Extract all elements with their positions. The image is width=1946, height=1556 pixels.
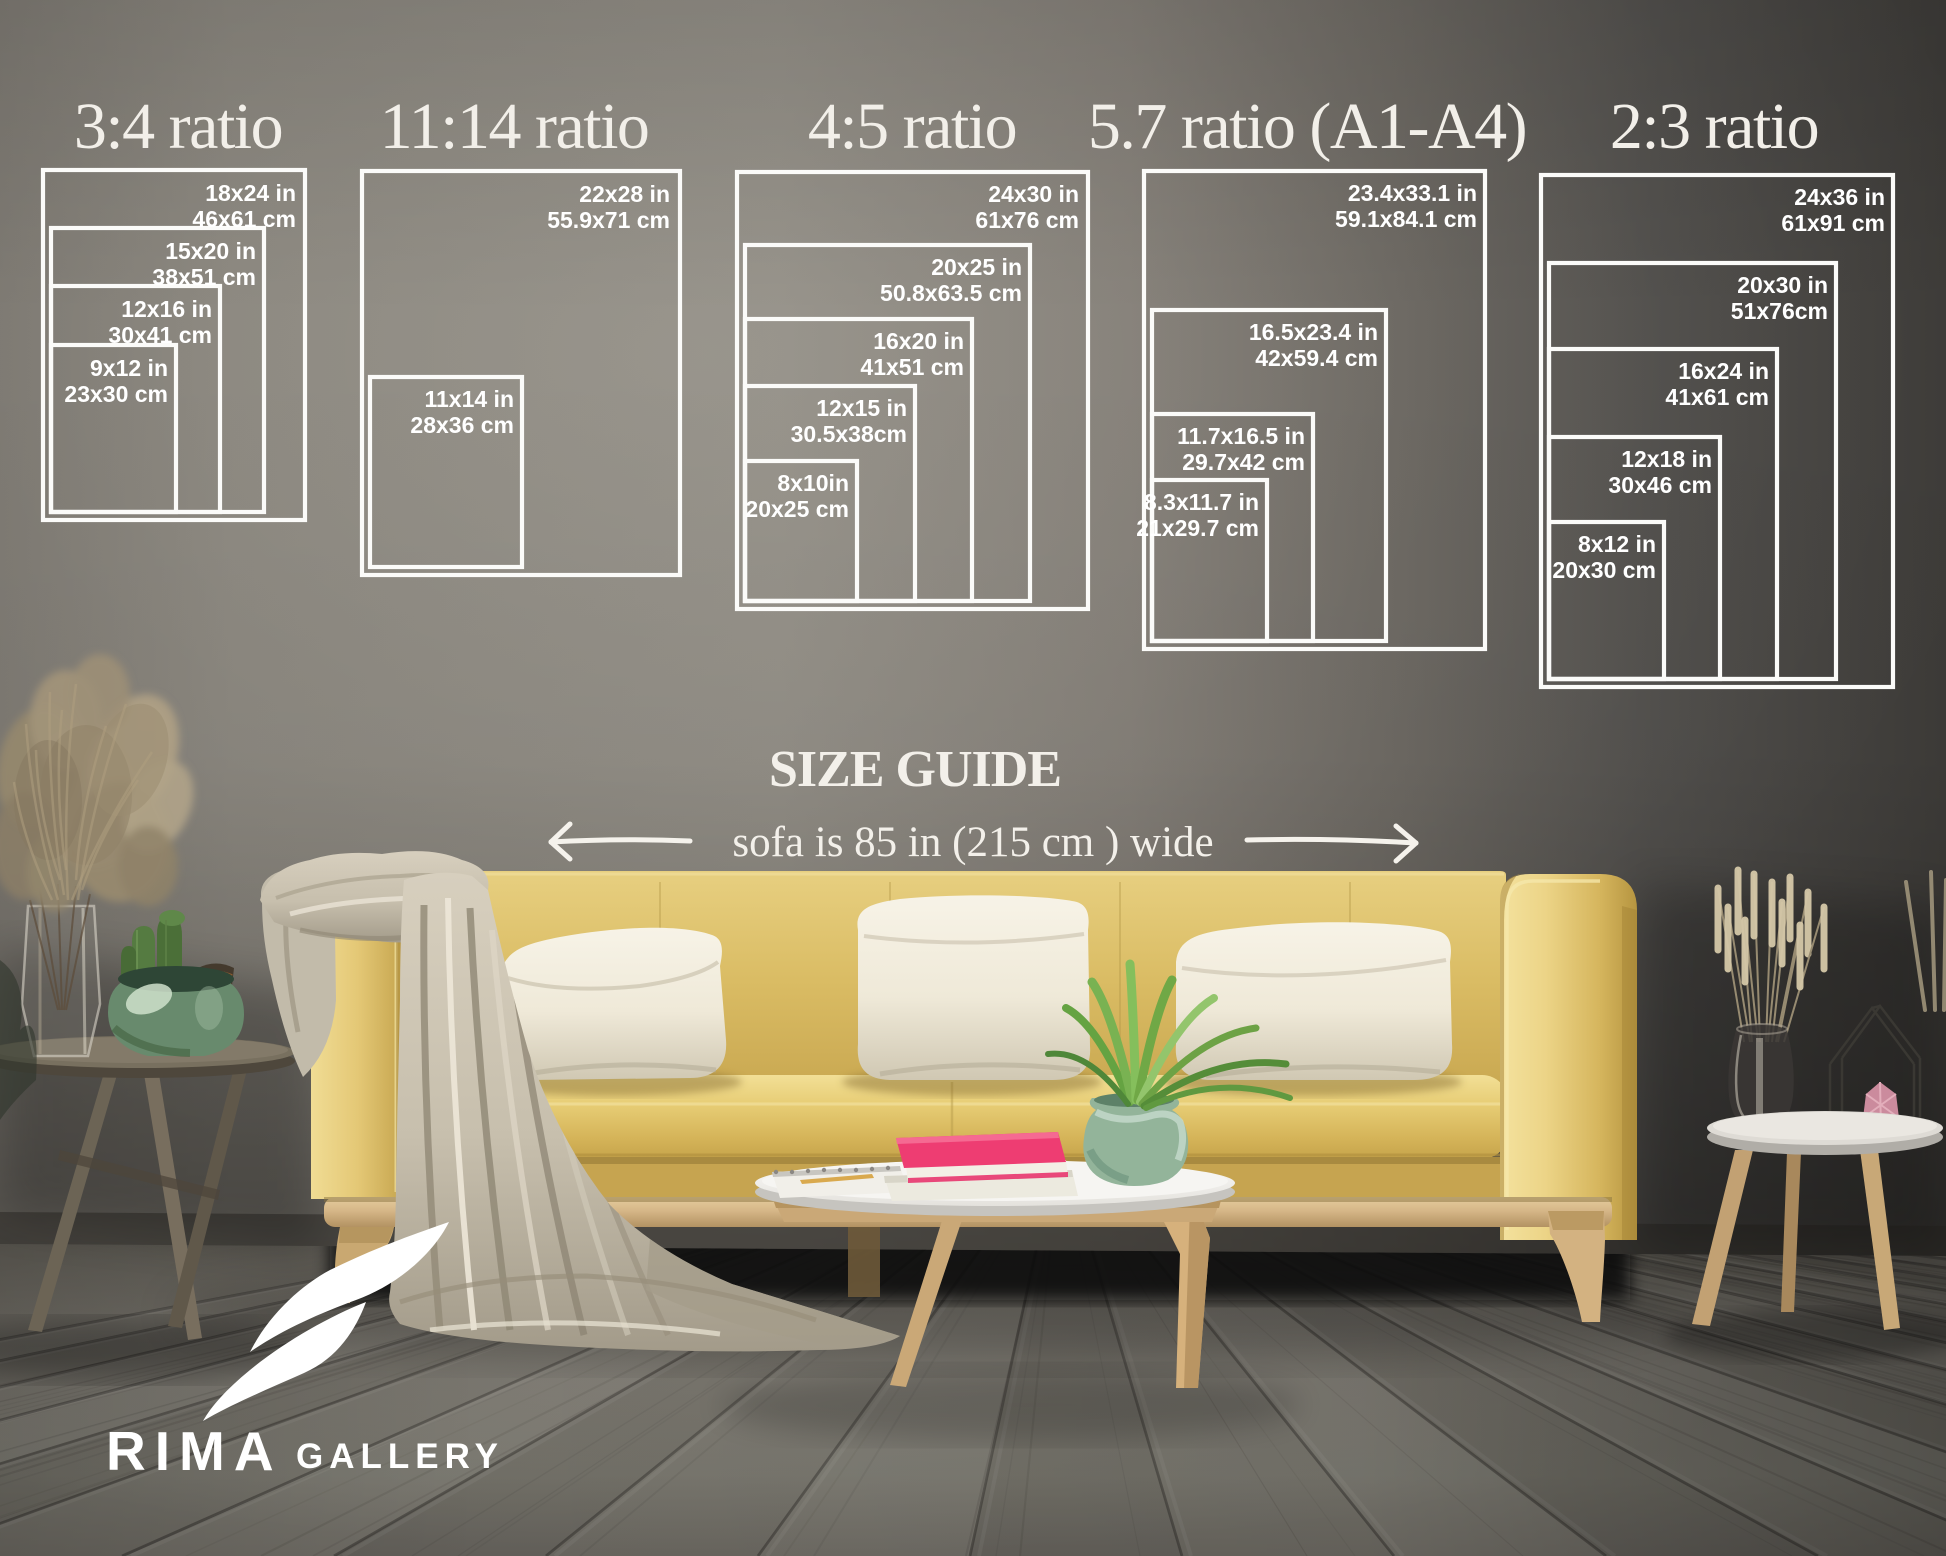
- svg-text:20x25 cm: 20x25 cm: [745, 496, 849, 522]
- svg-text:30.5x38cm: 30.5x38cm: [791, 421, 907, 447]
- svg-text:50.8x63.5 cm: 50.8x63.5 cm: [880, 280, 1022, 306]
- svg-text:30x46 cm: 30x46 cm: [1608, 472, 1712, 498]
- svg-text:51x76cm: 51x76cm: [1731, 298, 1828, 324]
- svg-text:23.4x33.1 in: 23.4x33.1 in: [1348, 180, 1477, 206]
- svg-text:sofa is 85 in (215 cm ) wide: sofa is 85 in (215 cm ) wide: [732, 819, 1213, 866]
- svg-text:61x91 cm: 61x91 cm: [1781, 210, 1885, 236]
- svg-text:16.5x23.4 in: 16.5x23.4 in: [1249, 319, 1378, 345]
- svg-text:12x15 in: 12x15 in: [816, 395, 907, 421]
- svg-text:28x36 cm: 28x36 cm: [410, 412, 514, 438]
- svg-text:16x20 in: 16x20 in: [873, 328, 964, 354]
- svg-text:12x18 in: 12x18 in: [1621, 446, 1712, 472]
- svg-text:20x30 cm: 20x30 cm: [1552, 557, 1656, 583]
- svg-text:41x61 cm: 41x61 cm: [1665, 384, 1769, 410]
- svg-text:11:14 ratio: 11:14 ratio: [380, 90, 649, 163]
- svg-text:16x24 in: 16x24 in: [1678, 358, 1769, 384]
- svg-text:5.7 ratio (A1-A4): 5.7 ratio (A1-A4): [1088, 90, 1526, 163]
- svg-text:46x61 cm: 46x61 cm: [192, 206, 296, 232]
- svg-text:38x51 cm: 38x51 cm: [152, 264, 256, 290]
- svg-text:24x30 in: 24x30 in: [988, 181, 1079, 207]
- svg-text:22x28 in: 22x28 in: [579, 181, 670, 207]
- svg-text:15x20 in: 15x20 in: [165, 238, 256, 264]
- svg-text:42x59.4 cm: 42x59.4 cm: [1255, 345, 1378, 371]
- svg-text:8x10in: 8x10in: [777, 470, 849, 496]
- svg-text:11x14 in: 11x14 in: [424, 386, 514, 412]
- svg-text:8.3x11.7 in: 8.3x11.7 in: [1144, 489, 1259, 515]
- svg-text:23x30 cm: 23x30 cm: [64, 381, 168, 407]
- svg-text:20x25 in: 20x25 in: [931, 254, 1022, 280]
- svg-text:2:3 ratio: 2:3 ratio: [1610, 90, 1818, 163]
- svg-text:59.1x84.1 cm: 59.1x84.1 cm: [1335, 206, 1477, 232]
- svg-text:GALLERY: GALLERY: [296, 1437, 504, 1476]
- svg-text:9x12 in: 9x12 in: [90, 355, 168, 381]
- svg-text:18x24 in: 18x24 in: [205, 180, 296, 206]
- svg-text:21x29.7 cm: 21x29.7 cm: [1136, 515, 1259, 541]
- svg-text:29.7x42 cm: 29.7x42 cm: [1182, 449, 1305, 475]
- svg-text:41x51 cm: 41x51 cm: [860, 354, 964, 380]
- svg-text:30x41 cm: 30x41 cm: [108, 322, 212, 348]
- svg-text:RIMA: RIMA: [106, 1420, 283, 1482]
- svg-text:4:5 ratio: 4:5 ratio: [808, 90, 1016, 163]
- svg-text:24x36 in: 24x36 in: [1794, 184, 1885, 210]
- svg-text:61x76 cm: 61x76 cm: [975, 207, 1079, 233]
- svg-text:20x30 in: 20x30 in: [1737, 272, 1828, 298]
- svg-text:SIZE GUIDE: SIZE GUIDE: [769, 741, 1061, 798]
- svg-text:3:4 ratio: 3:4 ratio: [74, 90, 282, 163]
- svg-text:8x12 in: 8x12 in: [1578, 531, 1656, 557]
- svg-text:12x16 in: 12x16 in: [121, 296, 212, 322]
- svg-text:11.7x16.5 in: 11.7x16.5 in: [1177, 423, 1305, 449]
- svg-text:55.9x71 cm: 55.9x71 cm: [547, 207, 670, 233]
